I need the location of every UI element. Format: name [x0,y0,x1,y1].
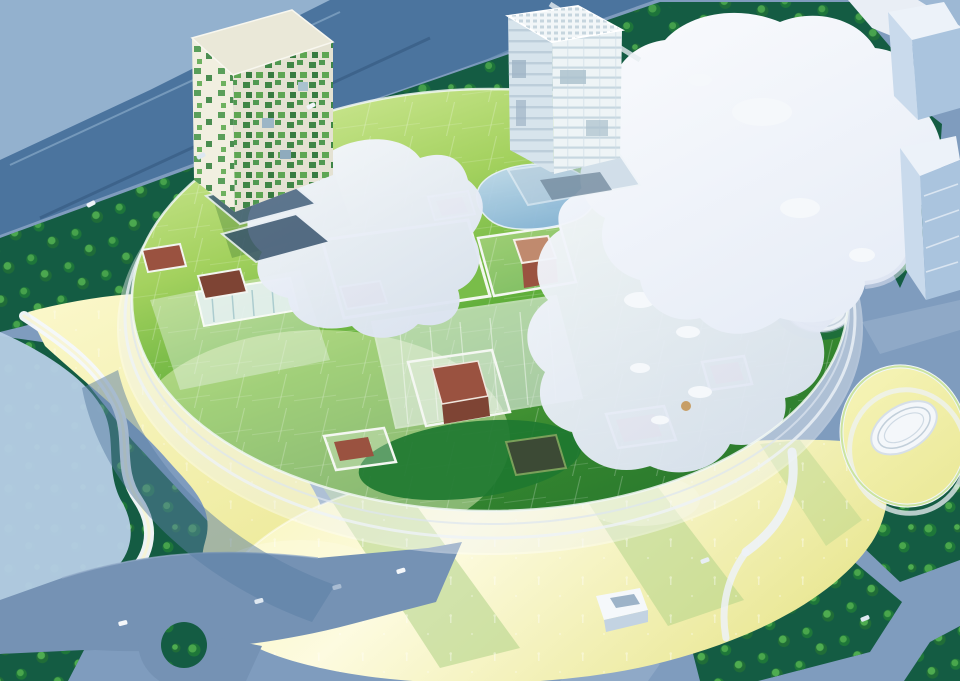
glass-tile [262,118,274,128]
courtyard-R3 [324,428,396,470]
glass-patch [512,60,526,78]
glass-tile [298,82,308,91]
glass-patch [560,70,586,84]
round-pad [688,386,712,398]
glass-patch [586,120,608,136]
island-trees [161,622,207,668]
courtyard-R2 [408,350,510,426]
side [920,160,960,300]
round-pad [630,363,650,373]
glass-tile [280,150,291,159]
brick-slot [142,244,186,272]
canopy-pad [732,98,792,126]
round-pad [676,326,700,338]
glass-tower [508,6,640,205]
side [912,28,960,120]
sunken-court [506,435,566,475]
canopy-pad [849,248,875,262]
tan-dot [681,401,691,411]
canopy-pad [688,74,712,86]
round-pad [651,416,669,425]
scene [0,0,960,681]
mullions [552,30,622,174]
glass-patch [516,100,526,126]
canopy-pad [780,198,820,218]
model-photo [0,0,960,681]
